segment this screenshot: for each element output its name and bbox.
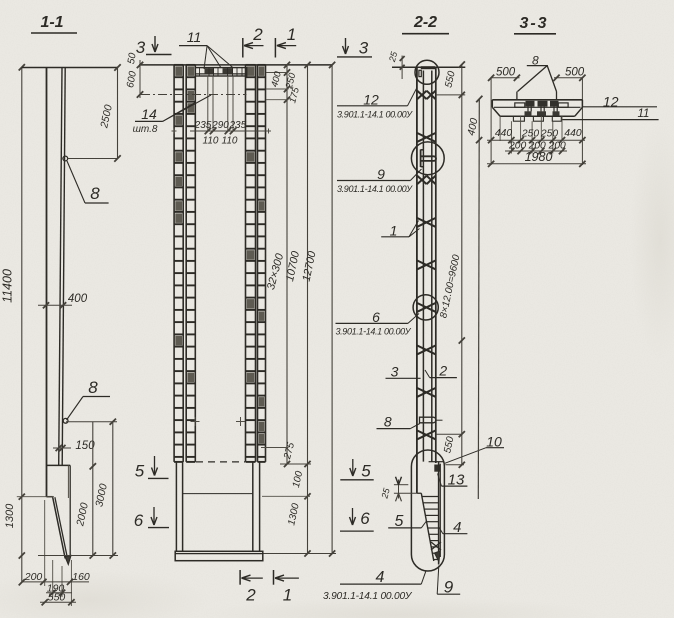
svg-text:3.901.1-14.1 00.00У: 3.901.1-14.1 00.00У (323, 591, 413, 602)
svg-text:1300: 1300 (4, 503, 16, 528)
svg-text:550: 550 (48, 592, 66, 604)
svg-text:11400: 11400 (1, 269, 15, 303)
svg-text:9: 9 (377, 166, 385, 182)
svg-text:2: 2 (438, 363, 447, 379)
svg-text:3: 3 (359, 39, 369, 58)
svg-text:110: 110 (203, 136, 219, 147)
svg-text:1: 1 (390, 223, 398, 239)
svg-text:5: 5 (361, 462, 371, 481)
svg-text:440: 440 (495, 128, 512, 139)
svg-text:2: 2 (245, 586, 256, 605)
svg-text:3.901.1-14.1 00.00У: 3.901.1-14.1 00.00У (336, 327, 412, 337)
svg-text:110: 110 (222, 136, 238, 147)
svg-text:11: 11 (638, 108, 650, 120)
svg-text:3: 3 (391, 364, 399, 380)
svg-text:11: 11 (187, 29, 202, 45)
svg-text:440: 440 (564, 128, 581, 139)
svg-text:500: 500 (496, 66, 516, 78)
svg-text:шт.8: шт.8 (133, 124, 158, 135)
svg-text:250: 250 (540, 129, 558, 140)
svg-text:1980: 1980 (525, 150, 553, 164)
svg-text:1-1: 1-1 (40, 14, 63, 31)
svg-text:12: 12 (363, 92, 379, 108)
svg-text:1: 1 (287, 25, 296, 44)
svg-text:200: 200 (24, 571, 43, 583)
svg-text:3.901.1-14.1 00.00У: 3.901.1-14.1 00.00У (337, 110, 413, 120)
svg-text:4: 4 (376, 569, 385, 586)
svg-text:5: 5 (135, 462, 145, 481)
svg-text:8: 8 (384, 414, 392, 430)
svg-text:6: 6 (360, 509, 370, 528)
svg-text:8: 8 (88, 378, 98, 397)
svg-text:400: 400 (68, 293, 88, 305)
svg-text:235: 235 (194, 120, 212, 131)
svg-text:250: 250 (521, 129, 539, 140)
svg-text:6: 6 (134, 511, 144, 530)
svg-text:1: 1 (283, 586, 292, 605)
svg-text:235: 235 (228, 120, 246, 131)
svg-text:2-2: 2-2 (413, 14, 437, 31)
svg-text:14: 14 (141, 106, 157, 122)
svg-text:150: 150 (75, 440, 95, 452)
svg-text:6: 6 (372, 309, 380, 325)
svg-text:3-3: 3-3 (519, 15, 548, 32)
svg-text:500: 500 (565, 66, 585, 78)
svg-text:160: 160 (72, 571, 90, 583)
svg-text:8: 8 (90, 184, 100, 203)
svg-text:3.901.1-14.1 00.00У: 3.901.1-14.1 00.00У (337, 184, 413, 194)
svg-text:290: 290 (211, 120, 229, 131)
svg-text:2: 2 (252, 25, 263, 44)
